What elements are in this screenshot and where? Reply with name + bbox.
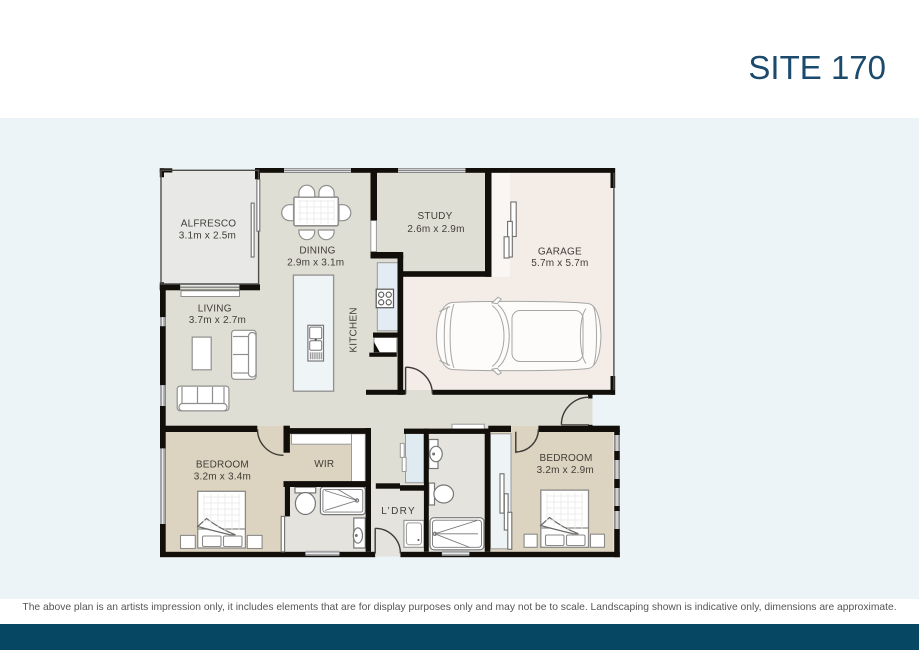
- svg-text:5.7m x 5.7m: 5.7m x 5.7m: [531, 258, 588, 269]
- svg-text:3.2m x 2.9m: 3.2m x 2.9m: [537, 465, 594, 476]
- svg-text:3.7m x 2.7m: 3.7m x 2.7m: [189, 315, 246, 326]
- svg-text:BEDROOM: BEDROOM: [539, 453, 592, 464]
- svg-text:BEDROOM: BEDROOM: [196, 460, 249, 471]
- svg-text:L’DRY: L’DRY: [381, 506, 416, 517]
- svg-text:3.1m x 2.5m: 3.1m x 2.5m: [179, 231, 236, 242]
- svg-text:WIR: WIR: [314, 459, 334, 470]
- svg-text:GARAGE: GARAGE: [538, 247, 582, 258]
- svg-text:KITCHEN: KITCHEN: [349, 307, 360, 352]
- svg-text:3.2m x 3.4m: 3.2m x 3.4m: [194, 471, 251, 482]
- svg-text:2.6m x 2.9m: 2.6m x 2.9m: [407, 224, 464, 235]
- svg-text:ALFRESCO: ALFRESCO: [181, 219, 237, 230]
- svg-text:DINING: DINING: [299, 245, 335, 256]
- svg-text:LIVING: LIVING: [198, 303, 232, 314]
- svg-text:2.9m x 3.1m: 2.9m x 3.1m: [287, 257, 344, 268]
- svg-text:STUDY: STUDY: [418, 211, 453, 222]
